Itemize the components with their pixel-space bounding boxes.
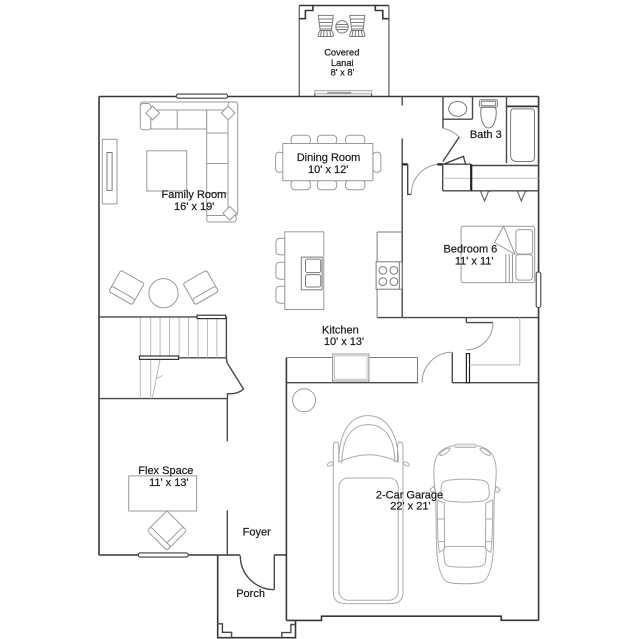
svg-text:10' x 12': 10' x 12' <box>308 164 348 176</box>
svg-text:Dining Room: Dining Room <box>297 152 361 164</box>
svg-text:16' x 19': 16' x 19' <box>174 201 214 213</box>
svg-text:10' x 13': 10' x 13' <box>324 336 364 348</box>
svg-text:Lanai: Lanai <box>331 58 354 68</box>
svg-text:Kitchen: Kitchen <box>322 324 359 336</box>
svg-text:Porch: Porch <box>236 588 265 600</box>
svg-text:11' x 11': 11' x 11' <box>455 256 494 268</box>
svg-text:2-Car Garage: 2-Car Garage <box>376 489 443 501</box>
svg-text:Bedroom 6: Bedroom 6 <box>443 243 497 255</box>
svg-text:Flex Space: Flex Space <box>138 465 193 477</box>
svg-text:Covered: Covered <box>324 48 359 58</box>
svg-text:11' x 13': 11' x 13' <box>149 477 188 489</box>
svg-text:22' x 21': 22' x 21' <box>390 501 430 513</box>
svg-text:Family Room: Family Room <box>162 189 227 201</box>
svg-text:Bath 3: Bath 3 <box>470 129 502 141</box>
svg-text:Foyer: Foyer <box>243 527 271 539</box>
svg-text:8' x 8': 8' x 8' <box>331 68 355 78</box>
